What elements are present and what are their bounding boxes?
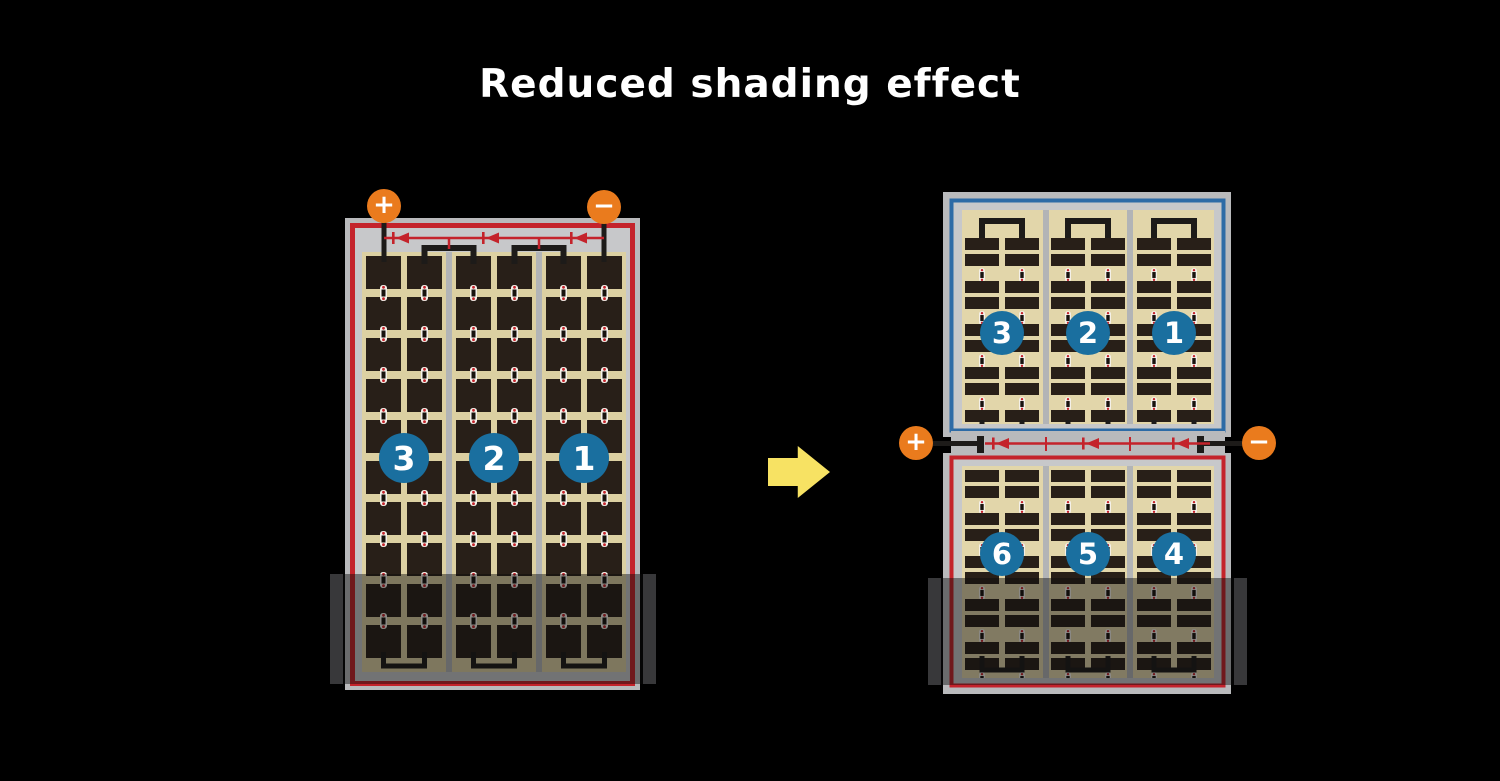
right-shading-overlay bbox=[928, 578, 1247, 685]
right-positive-terminal: + bbox=[899, 426, 933, 460]
right-negative-terminal: − bbox=[1242, 426, 1276, 460]
shade-band-cap bbox=[643, 574, 656, 684]
diagram-canvas: Reduced shading effect + − + − 3 2 1 3 2… bbox=[0, 0, 1500, 781]
plus-icon: + bbox=[905, 429, 927, 455]
shade-band-cap bbox=[1234, 578, 1247, 685]
string-badge-3: 3 bbox=[379, 433, 429, 483]
modules-illustration bbox=[0, 0, 1500, 781]
string-badge-6: 6 bbox=[980, 532, 1024, 576]
left-positive-terminal: + bbox=[367, 189, 401, 223]
string-badge-1: 1 bbox=[1152, 311, 1196, 355]
string-badge-4: 4 bbox=[1152, 532, 1196, 576]
shade-band-cap bbox=[928, 578, 941, 685]
minus-icon: − bbox=[1248, 429, 1270, 455]
string-badge-5: 5 bbox=[1066, 532, 1110, 576]
string-badge-3: 3 bbox=[980, 311, 1024, 355]
left-negative-terminal: − bbox=[587, 190, 621, 224]
string-badge-1: 1 bbox=[559, 433, 609, 483]
string-badge-2: 2 bbox=[1066, 311, 1110, 355]
left-shading-overlay bbox=[330, 574, 656, 684]
shade-band-cap bbox=[330, 574, 343, 684]
string-badge-2: 2 bbox=[469, 433, 519, 483]
plus-icon: + bbox=[373, 192, 395, 218]
minus-icon: − bbox=[593, 193, 615, 219]
